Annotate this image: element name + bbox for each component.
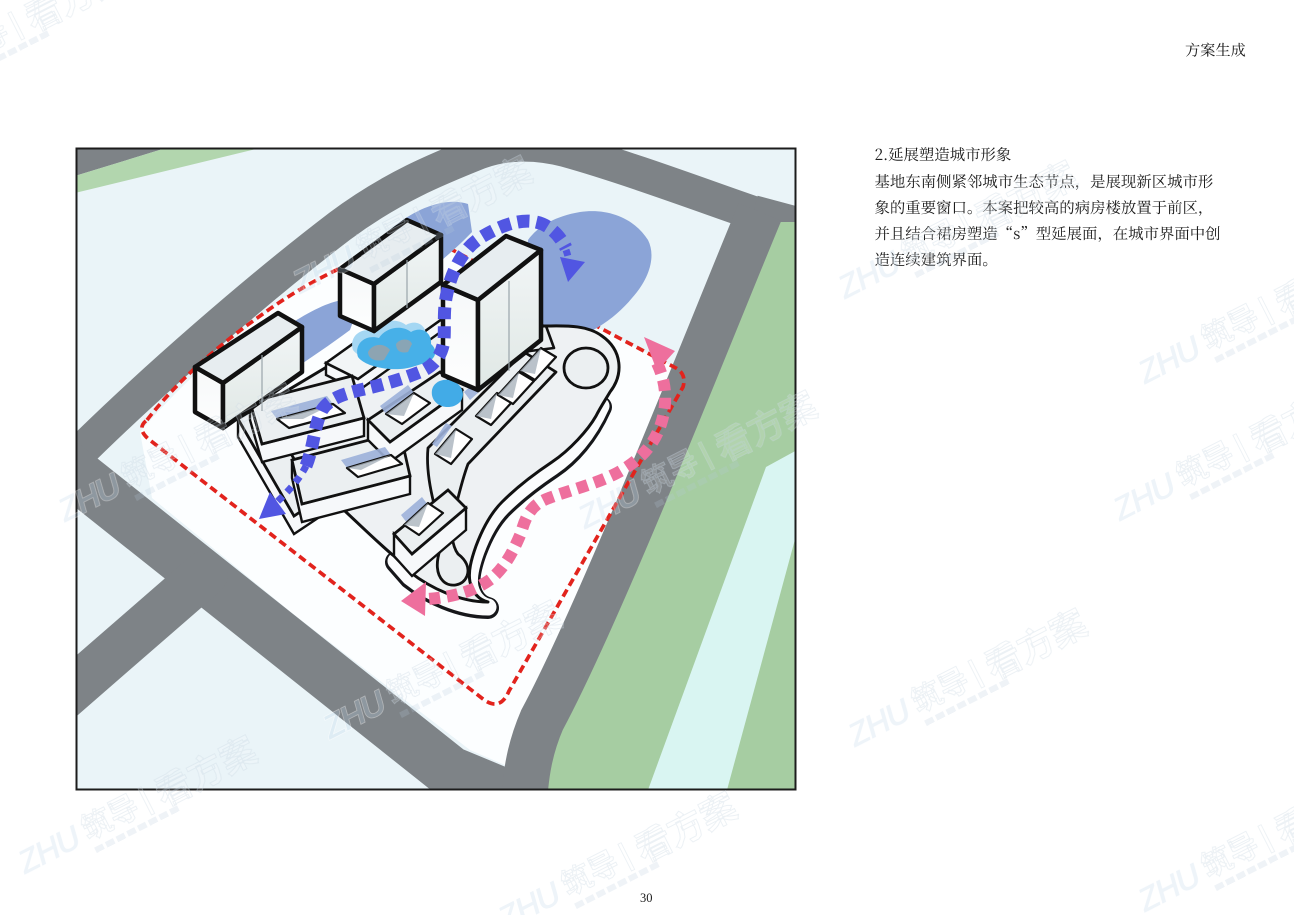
svg-text:30: 30 xyxy=(640,891,653,905)
